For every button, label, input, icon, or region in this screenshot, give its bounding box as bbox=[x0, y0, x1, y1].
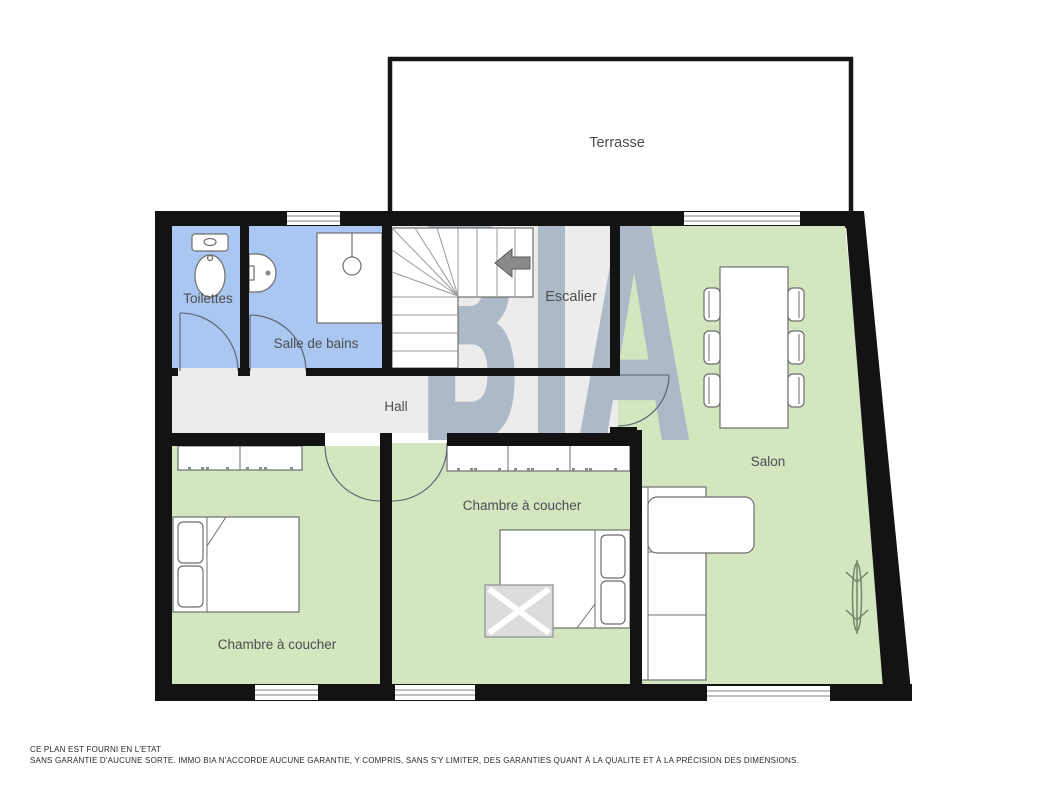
disclaimer: CE PLAN EST FOURNI EN L'ETAT SANS GARANT… bbox=[30, 744, 1040, 766]
wall bbox=[306, 368, 620, 376]
toilet-icon bbox=[192, 234, 228, 297]
disclaimer-line-1: CE PLAN EST FOURNI EN L'ETAT bbox=[30, 744, 1040, 755]
room-label-salon: Salon bbox=[751, 454, 786, 469]
dining-table bbox=[720, 267, 788, 428]
wall bbox=[155, 211, 172, 701]
window bbox=[287, 212, 340, 225]
pillow bbox=[601, 535, 625, 578]
shower-icon bbox=[317, 233, 382, 323]
room-label-chambre-2: Chambre à coucher bbox=[463, 498, 582, 513]
window bbox=[684, 212, 800, 225]
dining-table-set bbox=[704, 267, 804, 428]
wall bbox=[240, 226, 249, 368]
wall bbox=[380, 433, 392, 684]
wall bbox=[610, 226, 620, 376]
disclaimer-line-2: SANS GARANTIE D'AUCUNE SORTE. IMMO BIA N… bbox=[30, 755, 1040, 766]
floor-plan-drawing: BIA bbox=[0, 0, 1060, 800]
wardrobe bbox=[178, 446, 302, 470]
window bbox=[395, 685, 475, 700]
floor-plan: BIA bbox=[0, 0, 1060, 800]
wardrobe bbox=[447, 443, 630, 471]
double-bed bbox=[173, 517, 299, 612]
wall bbox=[382, 226, 392, 368]
wall bbox=[172, 433, 325, 446]
wall bbox=[238, 368, 250, 376]
window bbox=[707, 686, 830, 701]
room-label-terrasse: Terrasse bbox=[589, 135, 645, 151]
room-label-escalier: Escalier bbox=[545, 289, 597, 305]
room-label-hall: Hall bbox=[384, 399, 407, 414]
wall bbox=[630, 430, 642, 684]
pillow bbox=[178, 522, 203, 563]
wall bbox=[447, 433, 637, 446]
room-label-salle-de-bains: Salle de bains bbox=[274, 336, 359, 351]
wall bbox=[172, 368, 178, 376]
pillow bbox=[601, 581, 625, 624]
ottoman-chest bbox=[485, 585, 553, 637]
pillow bbox=[178, 566, 203, 607]
window bbox=[255, 685, 318, 700]
room-label-chambre-1: Chambre à coucher bbox=[218, 637, 337, 652]
room-label-toilettes: Toilettes bbox=[183, 291, 233, 306]
